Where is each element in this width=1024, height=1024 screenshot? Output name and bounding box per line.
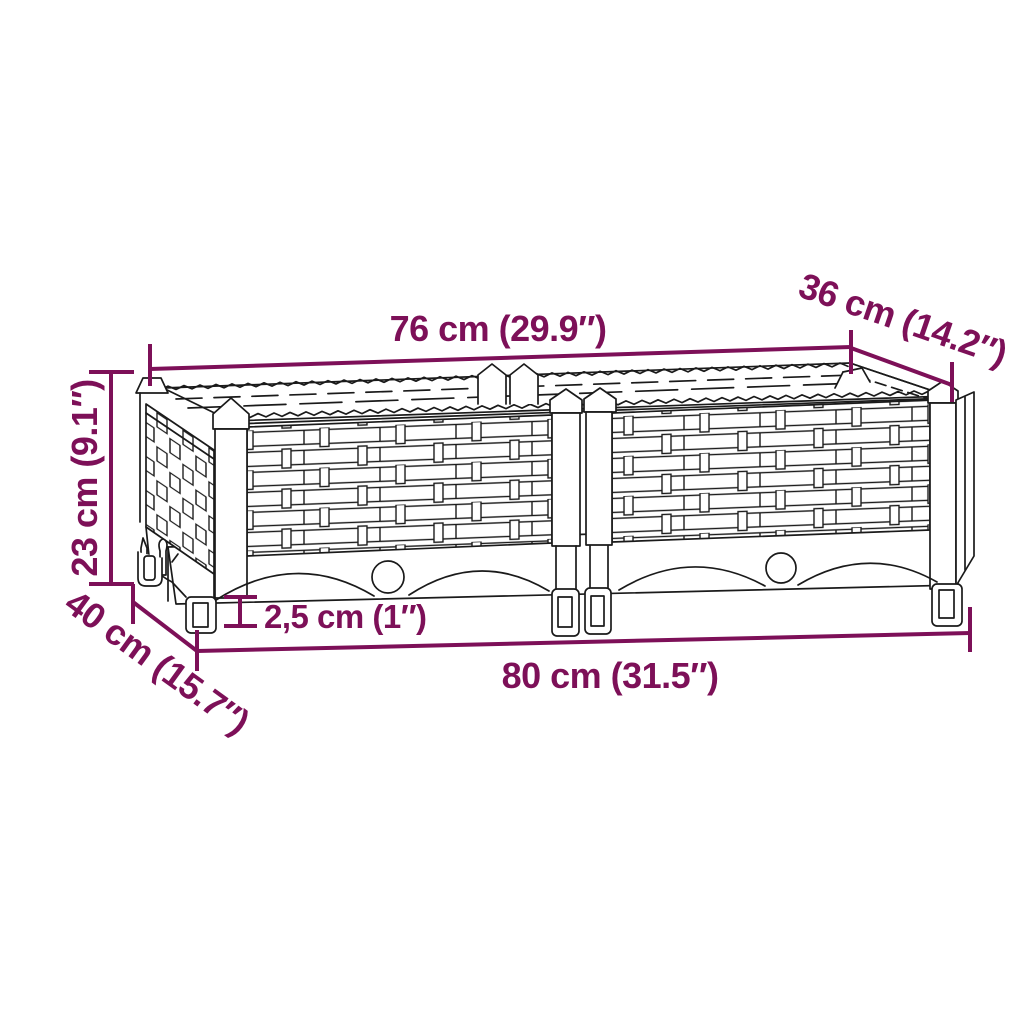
label-base-width: 80 cm (31.5″) (502, 655, 719, 696)
label-height: 23 cm (9.1″) (64, 379, 105, 576)
dim-base-width-line (197, 633, 970, 651)
diagram-canvas: 76 cm (29.9″) 36 cm (14.2″) 23 cm (9.1″)… (0, 0, 1024, 1024)
dim-top-width-line (150, 347, 851, 369)
planter-line-drawing (136, 363, 974, 636)
label-top-depth: 36 cm (14.2″) (794, 264, 1012, 373)
label-leg-height: 2,5 cm (1″) (264, 598, 427, 635)
label-base-depth: 40 cm (15.7″) (58, 582, 258, 743)
planter-dimension-diagram: 76 cm (29.9″) 36 cm (14.2″) 23 cm (9.1″)… (0, 0, 1024, 1024)
label-top-width: 76 cm (29.9″) (390, 308, 607, 349)
